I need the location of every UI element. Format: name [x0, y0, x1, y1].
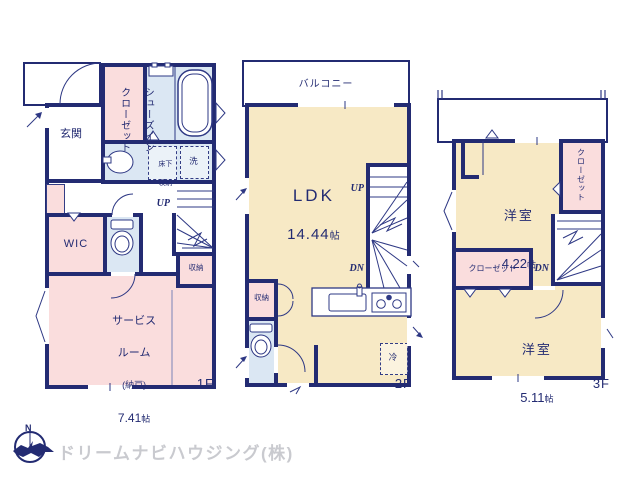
floor1-entrance-porch: [23, 62, 101, 106]
floor1-shoe-cabinet: [46, 184, 65, 216]
underfloor-line2: 収納: [158, 180, 172, 187]
service-room-label: サービス ルーム (納戸) 7.41帖: [52, 298, 204, 443]
service-sub-label: (納戸): [122, 380, 146, 390]
floor2-stairs-area: [370, 167, 407, 290]
floor3-top-window: [515, 139, 559, 143]
floor1-toilet-door-gap: [112, 213, 133, 217]
floor1-storage-label: 収納: [176, 264, 216, 273]
floor2-dn-label: DN: [340, 263, 364, 275]
fridge-label: 冷: [380, 352, 406, 362]
floor3-right-window-arrow: [607, 329, 613, 338]
floor2-wall-stub: [314, 345, 318, 387]
balcony-label: バルコニー: [242, 79, 410, 91]
washer-label: 洗: [180, 156, 207, 166]
floorplan-canvas: 玄関 シューズイン クローゼット 床下 収納 洗 WIC UP 収納 サービス …: [0, 0, 640, 480]
floor2-label: 2F: [384, 376, 412, 391]
floor1-up-label: UP: [144, 198, 170, 210]
room2-name: 洋室: [522, 342, 552, 357]
floor2-left-window-bottom: [245, 348, 249, 378]
floor1-toilet-room: [103, 213, 143, 276]
genkan-label: 玄関: [60, 128, 82, 141]
floor1-left-window-mark: [36, 291, 45, 342]
closet-top-label: クローゼット: [576, 148, 585, 208]
floor3-dn-label: DN: [525, 263, 549, 275]
shoe-closet-label-line1: シューズイン: [142, 87, 153, 153]
floor2-right-window: [407, 318, 411, 346]
floor2-bottom-door-gap: [287, 383, 309, 387]
compass-icon: [13, 430, 54, 462]
room1-label: 洋室 4.22帖: [462, 180, 558, 300]
floor2-toilet-door-gap: [274, 347, 278, 373]
underfloor-line1: 床下: [158, 161, 172, 168]
floor3-left-window: [452, 190, 456, 232]
bath-right-door-arrow: [216, 103, 225, 123]
underfloor-storage-label: 床下 収納: [148, 150, 175, 199]
floor2-left-window-top: [245, 178, 249, 214]
floor3-label: 3F: [582, 376, 610, 391]
floor3-stairs-area: [555, 214, 601, 282]
floor3-balcony: [437, 98, 608, 143]
ldk-size-num: 14.44: [287, 226, 330, 243]
closet-bottom-label: クローゼット: [452, 264, 533, 273]
washroom-right-door-arrow: [216, 150, 225, 170]
floor2-balcony-window: [298, 103, 394, 107]
service-name-line2: ルーム: [118, 347, 151, 359]
entry-arrow-icon: [27, 112, 42, 127]
floor2-storage-label: 収納: [245, 294, 278, 303]
ldk-size-unit: 帖: [330, 231, 341, 242]
ldk-label: LDK 14.44帖: [250, 167, 360, 263]
floor3-nook-wall-h: [461, 175, 479, 179]
ldk-name: LDK: [293, 186, 335, 205]
room2-label: 洋室 5.11帖: [480, 314, 576, 434]
floor2-stairs-window: [407, 256, 411, 274]
floor1-genkan-room: [45, 103, 107, 183]
floor1-left-window: [45, 288, 49, 344]
floor1-label: 1F: [186, 376, 214, 391]
room2-size-num: 5.11: [520, 390, 544, 405]
service-name-line1: サービス: [112, 315, 156, 327]
floor1-entry-door-gap: [45, 108, 49, 128]
floor1-service-door-gap: [111, 272, 135, 276]
floor2-stairs-top-wall: [366, 163, 411, 167]
room2-size-unit: 帖: [545, 394, 554, 404]
floor2-up-label: UP: [340, 183, 364, 195]
shoe-closet-label-line2: クローゼット: [119, 87, 130, 153]
floor2-stairs-left-wall: [366, 163, 370, 290]
floor3-stairs-bottom-wall: [551, 282, 605, 286]
service-size-num: 7.41: [118, 411, 141, 425]
floor3-nook-wall-v: [461, 139, 465, 179]
floor1-stairs-wall: [172, 213, 176, 256]
service-size-unit: 帖: [141, 414, 150, 424]
company-name: ドリームナビハウジング(株): [58, 444, 294, 464]
floor3-left-window-mark: [444, 192, 452, 230]
room1-name: 洋室: [504, 208, 534, 223]
wic-label: WIC: [45, 238, 107, 251]
floor3-right-window: [601, 318, 605, 348]
compass-n-label: N: [25, 423, 32, 434]
